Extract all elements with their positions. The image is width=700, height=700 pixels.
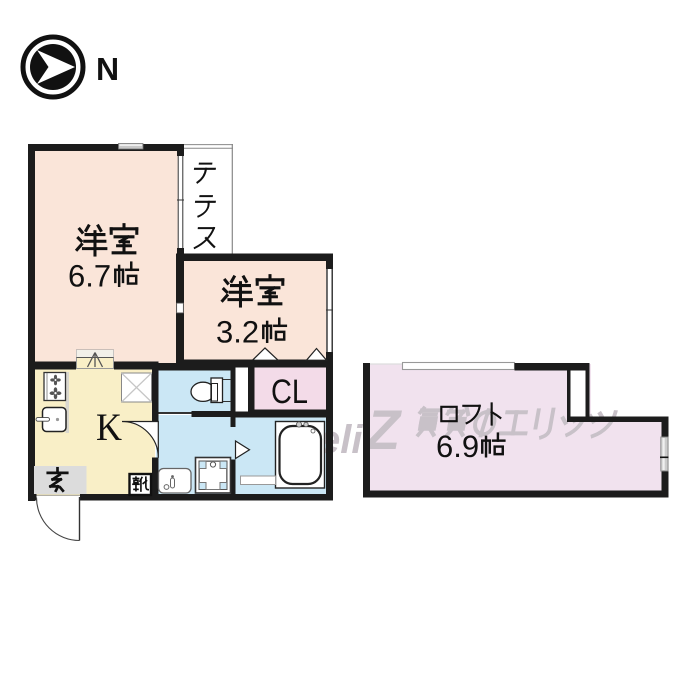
svg-text:6.7: 6.7 — [68, 259, 111, 294]
svg-text:K: K — [96, 406, 122, 449]
svg-text:CL: CL — [271, 373, 308, 411]
svg-text:3.2: 3.2 — [216, 315, 259, 350]
svg-text:N: N — [96, 51, 119, 87]
svg-text:6.9: 6.9 — [436, 429, 479, 464]
